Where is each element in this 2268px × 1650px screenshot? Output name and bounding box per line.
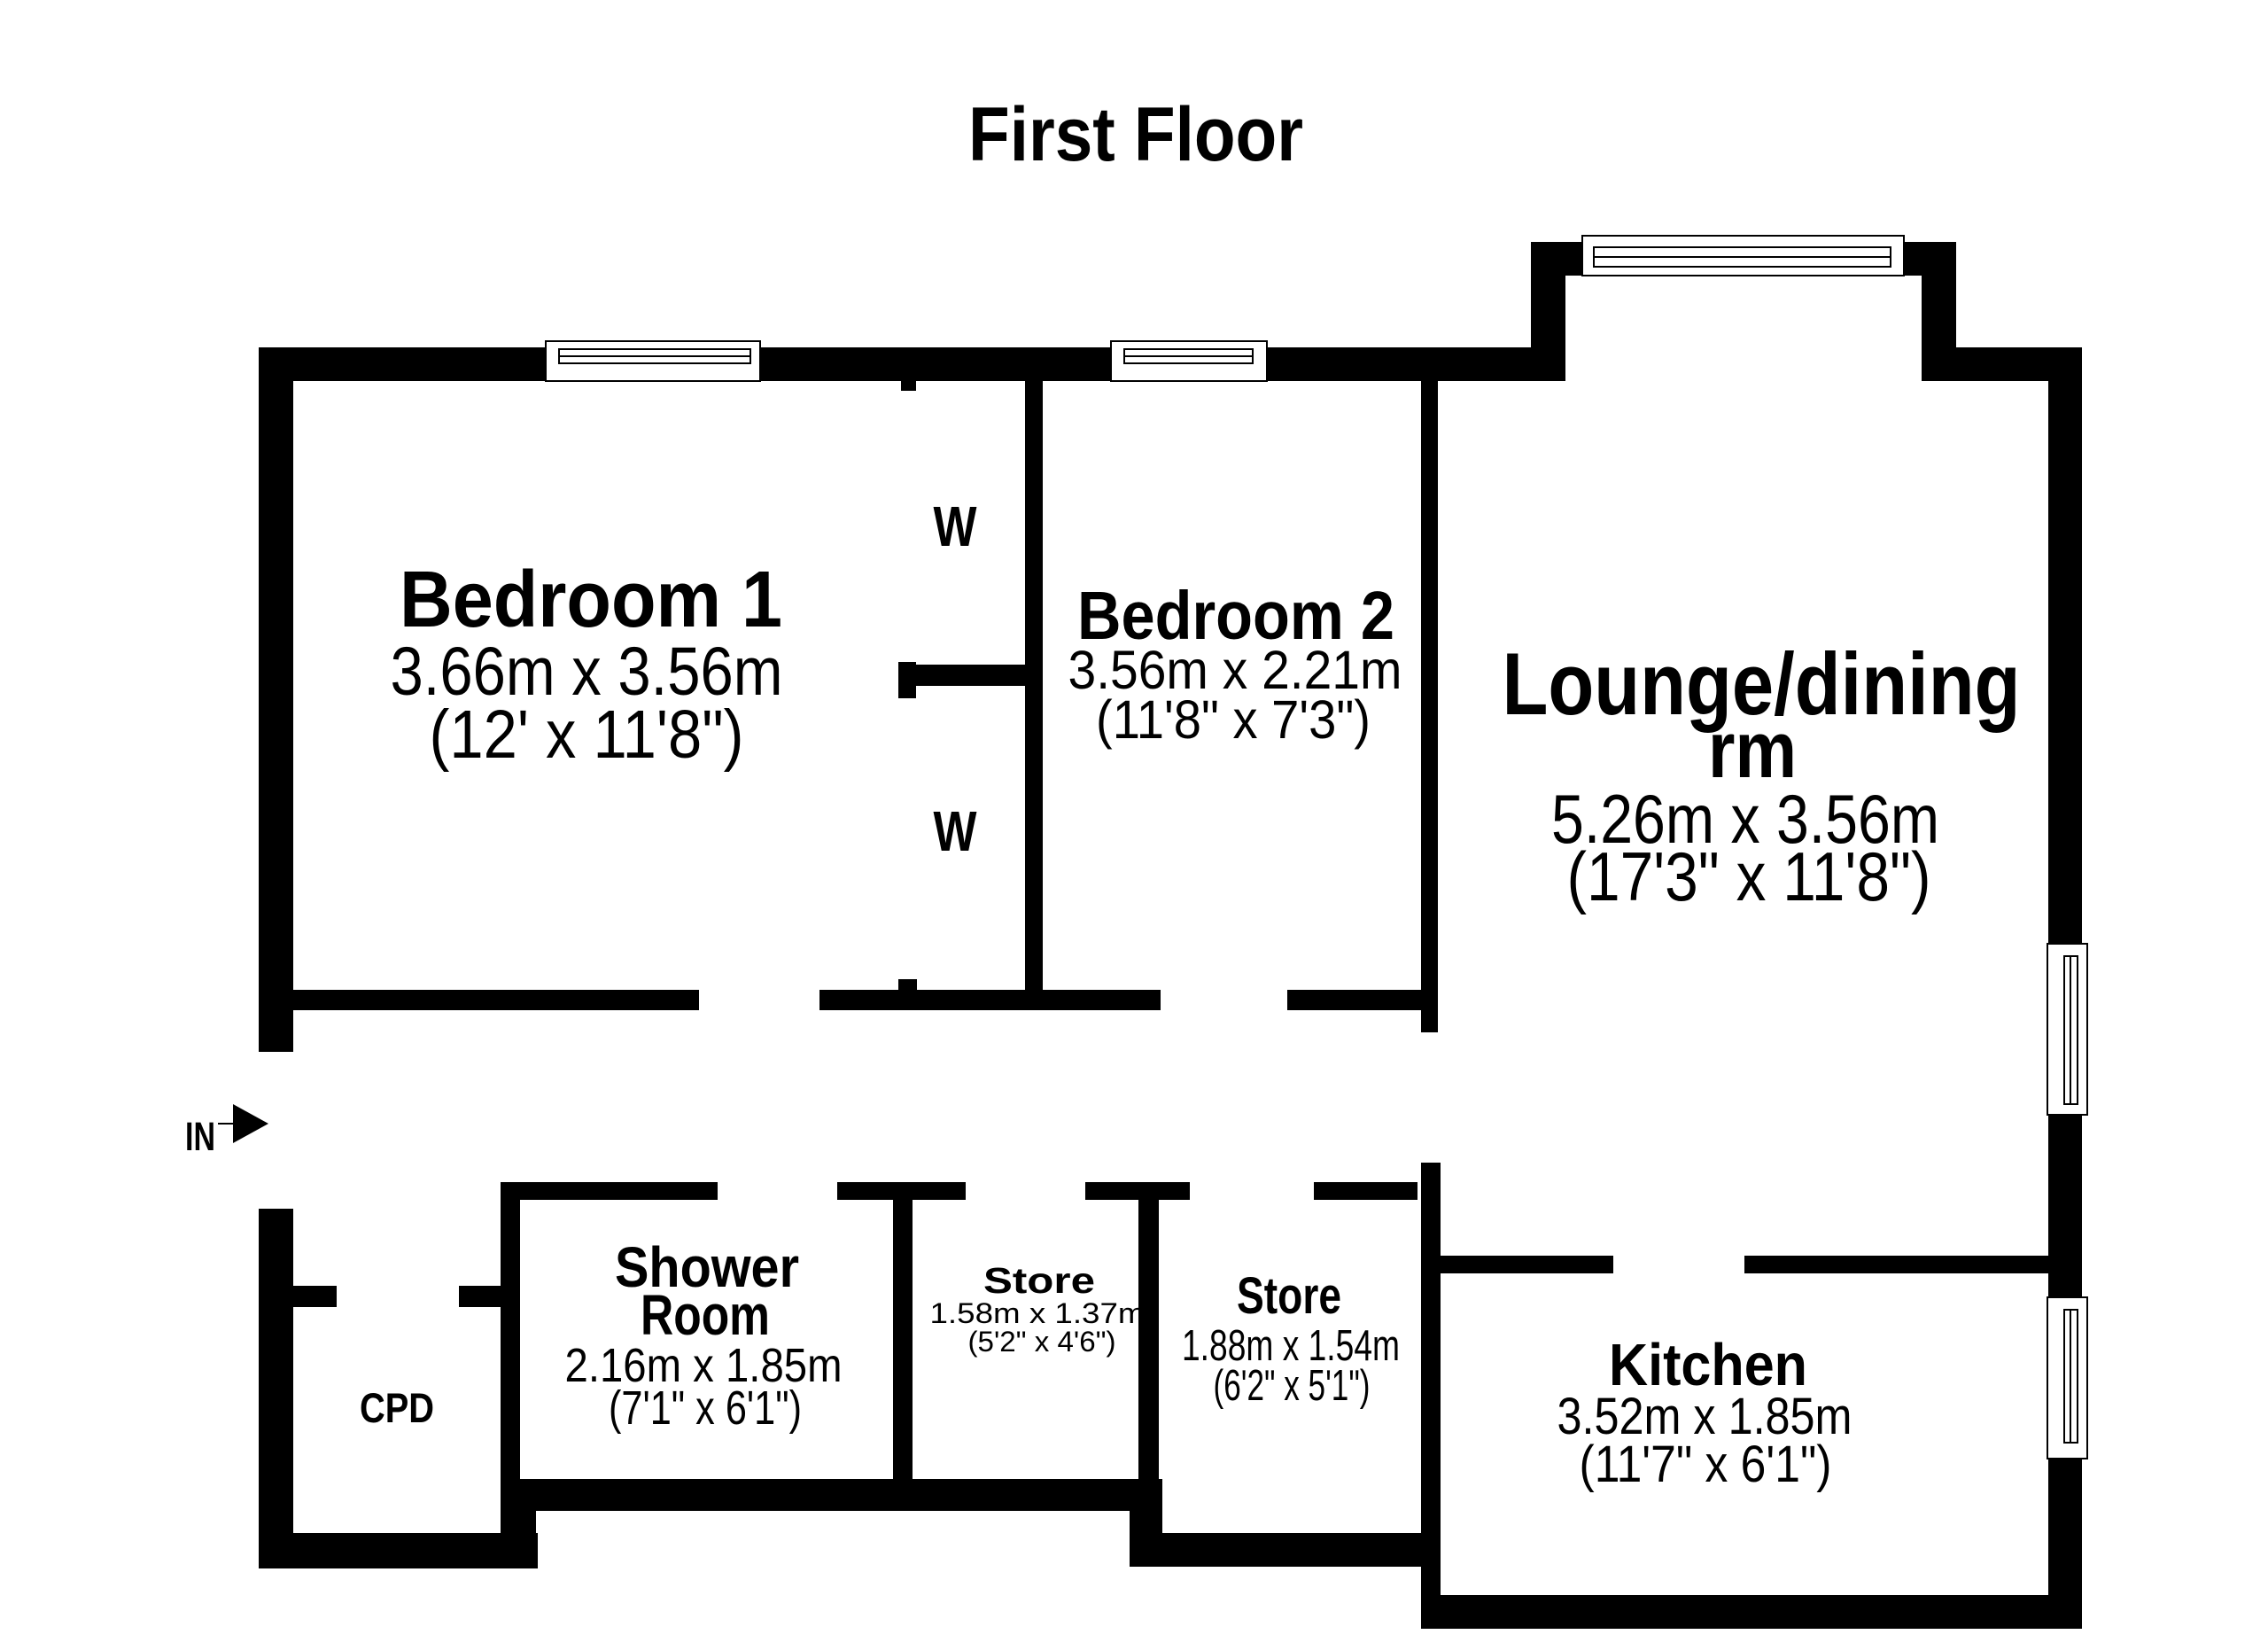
svg-text:W: W [934,494,977,558]
svg-text:Room: Room [641,1283,770,1347]
svg-text:(11'8" x 7'3"): (11'8" x 7'3") [1096,689,1371,750]
svg-text:First Floor: First Floor [968,92,1303,177]
svg-text:Store: Store [1237,1267,1341,1325]
svg-text:(7'1" x 6'1"): (7'1" x 6'1") [609,1381,802,1435]
svg-text:(17'3" x 11'8"): (17'3" x 11'8") [1567,837,1931,915]
svg-text:CPD: CPD [360,1384,434,1431]
svg-text:1.58m x 1.37m: 1.58m x 1.37m [930,1297,1146,1329]
svg-text:W: W [934,799,977,863]
svg-text:(12' x 11'8"): (12' x 11'8") [430,697,744,773]
svg-text:Bedroom 1: Bedroom 1 [400,556,782,644]
svg-text:(6'2" x 5'1"): (6'2" x 5'1") [1214,1362,1371,1410]
svg-text:(11'7" x 6'1"): (11'7" x 6'1") [1580,1436,1832,1493]
svg-text:IN: IN [185,1114,215,1159]
svg-text:(5'2" x 4'6"): (5'2" x 4'6") [968,1326,1116,1358]
svg-text:Store: Store [983,1260,1095,1301]
